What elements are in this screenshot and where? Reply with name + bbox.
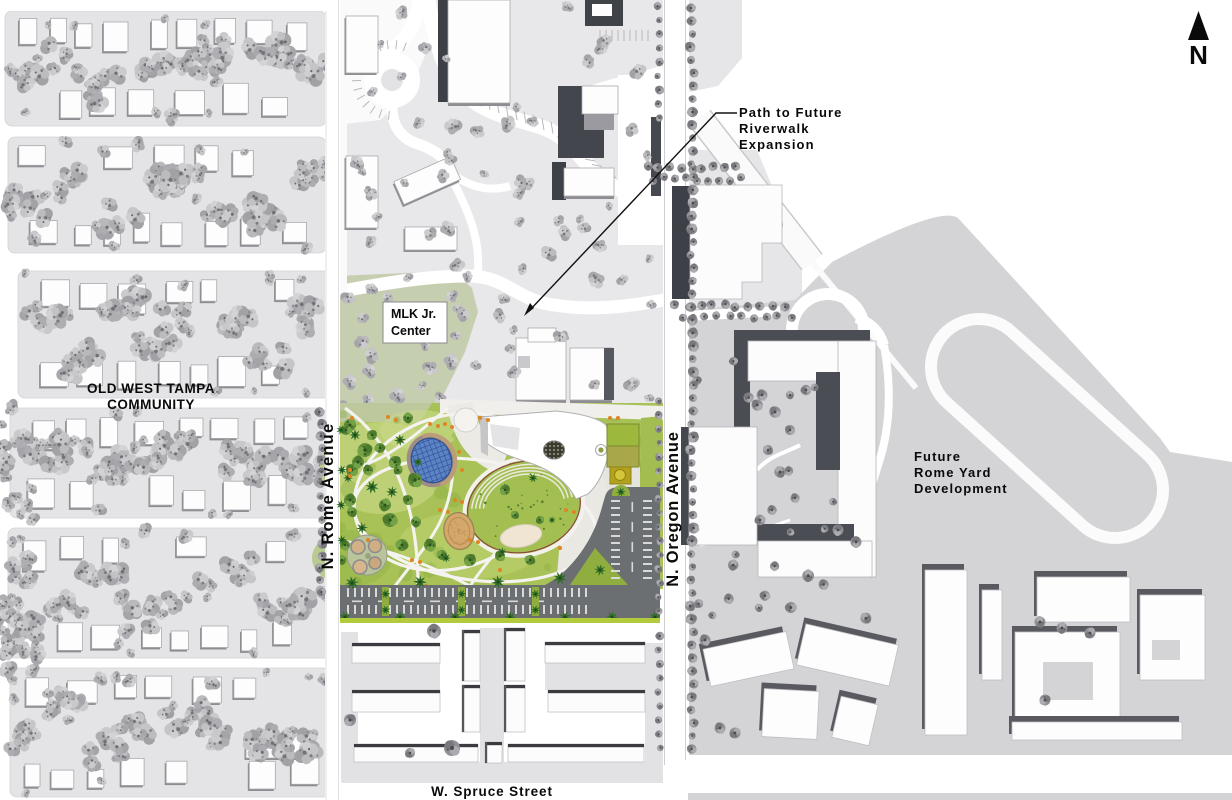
svg-text:OLD WEST TAMPA: OLD WEST TAMPA [87, 381, 215, 396]
svg-text:Rome Yard: Rome Yard [914, 465, 992, 480]
svg-text:Path to Future: Path to Future [739, 105, 843, 120]
svg-text:Center: Center [391, 324, 431, 338]
svg-text:N: N [1189, 40, 1208, 70]
svg-text:W. Spruce Street: W. Spruce Street [431, 784, 553, 799]
svg-text:MLK Jr.: MLK Jr. [391, 307, 436, 321]
svg-text:Development: Development [914, 481, 1008, 496]
svg-text:N. Rome Avenue: N. Rome Avenue [319, 423, 337, 570]
svg-text:N. Oregon Avenue: N. Oregon Avenue [664, 431, 682, 587]
svg-text:Riverwalk: Riverwalk [739, 121, 810, 136]
svg-text:Expansion: Expansion [739, 137, 815, 152]
svg-text:COMMUNITY: COMMUNITY [107, 397, 195, 412]
svg-text:Future: Future [914, 449, 961, 464]
